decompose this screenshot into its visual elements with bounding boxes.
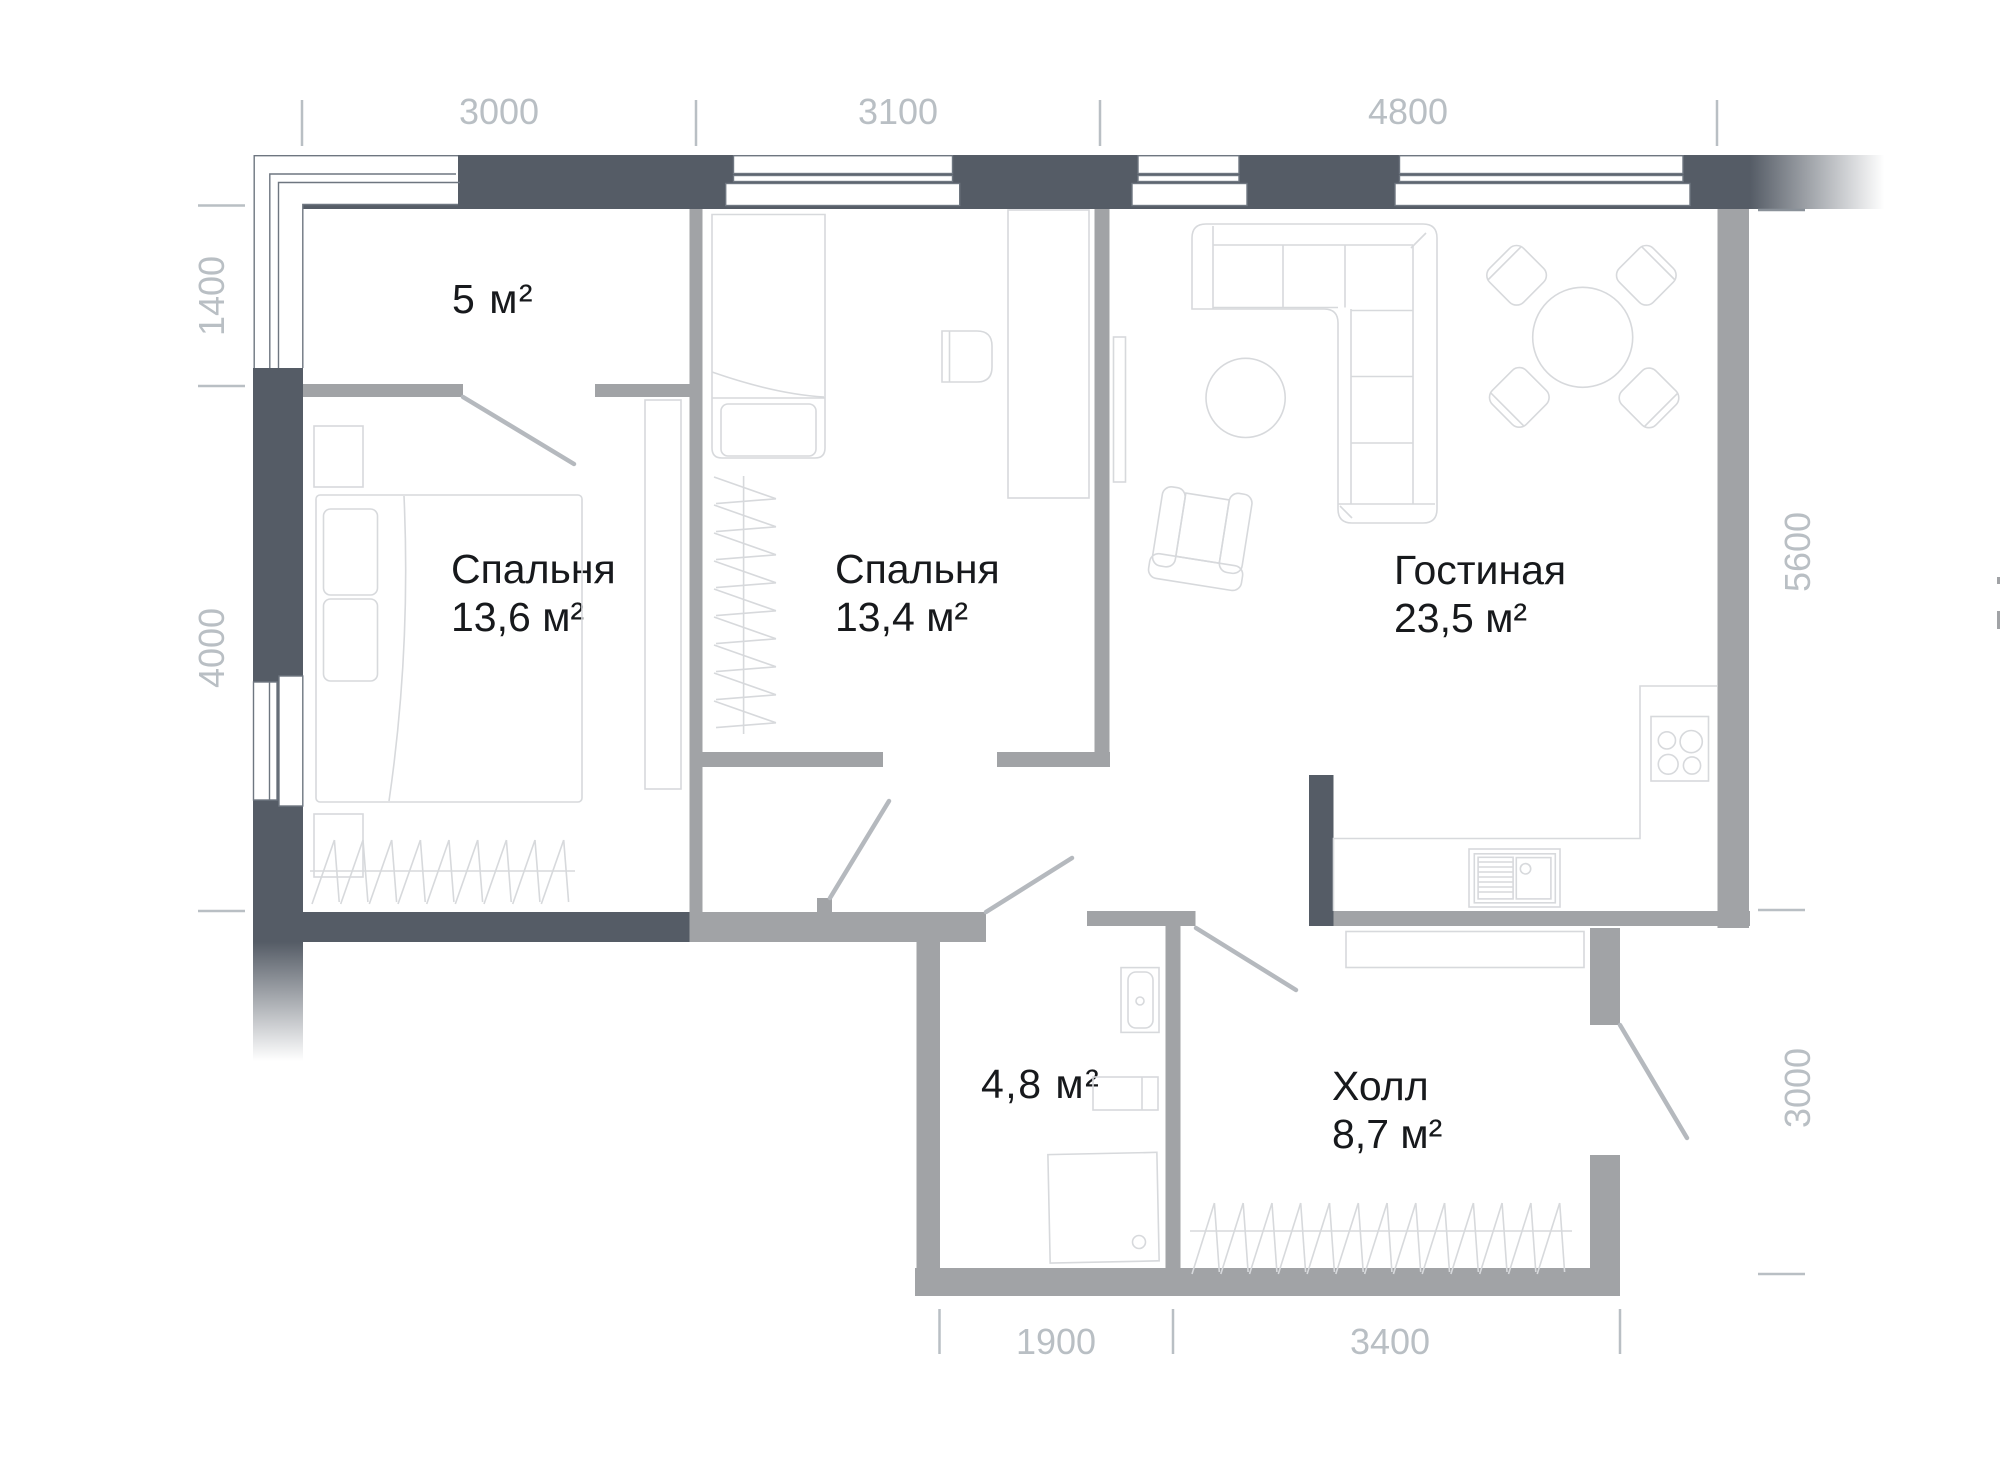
svg-text:4000: 4000 xyxy=(191,608,232,688)
svg-text:4800: 4800 xyxy=(1368,91,1448,132)
svg-text:5600: 5600 xyxy=(1777,512,1818,592)
svg-text:3000: 3000 xyxy=(459,91,539,132)
svg-text:Спальня: Спальня xyxy=(835,546,1000,592)
svg-text:Гостиная: Гостиная xyxy=(1394,547,1566,593)
svg-text:3400: 3400 xyxy=(1350,1321,1430,1362)
svg-text:13,6 м²: 13,6 м² xyxy=(451,594,584,640)
svg-text:3100: 3100 xyxy=(858,91,938,132)
svg-text:4,8 м²: 4,8 м² xyxy=(981,1061,1100,1107)
svg-text:Холл: Холл xyxy=(1332,1063,1429,1109)
svg-text:1400: 1400 xyxy=(191,256,232,336)
svg-text:Спальня: Спальня xyxy=(451,546,616,592)
svg-text:3000: 3000 xyxy=(1777,1048,1818,1128)
svg-text:5 м²: 5 м² xyxy=(452,276,534,322)
svg-text:1900: 1900 xyxy=(1016,1321,1096,1362)
svg-text:13,4 м²: 13,4 м² xyxy=(835,594,968,640)
svg-text:23,5 м²: 23,5 м² xyxy=(1394,595,1527,641)
svg-text:8,7 м²: 8,7 м² xyxy=(1332,1111,1442,1157)
